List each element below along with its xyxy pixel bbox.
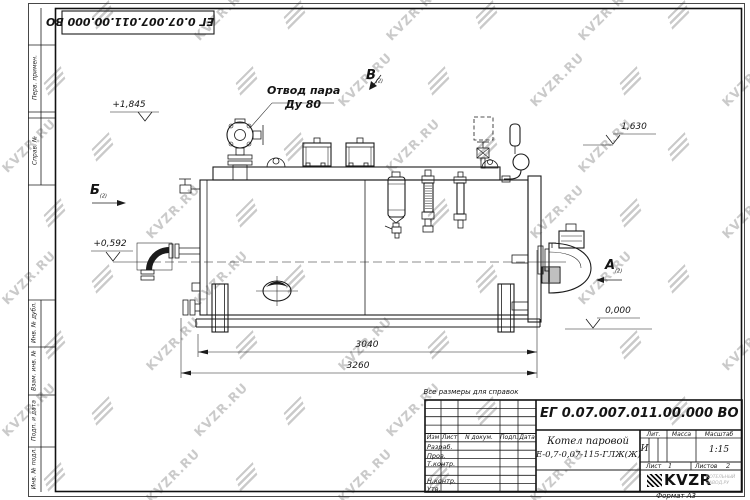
bottom-left-flange	[183, 283, 200, 315]
safety-valve-2	[346, 138, 374, 167]
dim-3260: 3260	[338, 361, 378, 371]
left-top-valve	[179, 179, 200, 193]
sheet-label: Лист	[646, 463, 661, 470]
elevation-1845: +1,845	[105, 100, 153, 110]
water-gauge-1	[422, 170, 434, 232]
margin-label-sprav-no: Справ. №	[32, 118, 39, 184]
steam-outlet-valve	[227, 119, 263, 180]
steam-outlet-label-line2: Ду 80	[267, 98, 339, 111]
scale-header: Масштаб	[696, 431, 742, 438]
margin-label-vzam-inv: Взам. инв. №	[31, 348, 38, 394]
dim-3040: 3040	[347, 340, 387, 350]
product-name-line1: Котел паровой	[538, 436, 638, 447]
margin-label-podp-data: Подп. и дата	[31, 395, 38, 447]
drawing-sheet: KVZR.RUKVZR.RUKVZR.RUKVZR.RUKVZR.RUKVZR.…	[0, 0, 750, 500]
col-header-izm: Изм	[424, 434, 442, 441]
lit-value: И	[640, 444, 649, 454]
format-label: Формат А3	[646, 492, 706, 500]
col-header-list: Лист	[441, 434, 458, 441]
row-label-prov: Пров.	[427, 452, 446, 460]
sheet-frame	[28, 4, 745, 497]
row-label-utv: Утв.	[427, 485, 441, 493]
mass-header: Масса	[667, 431, 696, 438]
skid-frame	[196, 319, 540, 327]
phantom-valve-outline	[474, 117, 493, 140]
kvzr-logo-text: KVZR	[664, 471, 712, 489]
margin-label-inv-podl: Инв. № подл.	[31, 447, 38, 491]
elevation-0592: +0,592	[86, 239, 134, 249]
row-label-tkontr: Т.контр.	[427, 460, 455, 468]
lifting-lug-left	[267, 158, 285, 167]
kvzr-logo-subtext-2: ЗАВОД.РУ	[706, 481, 729, 486]
kvzr-logo-icon	[647, 474, 662, 487]
sheet-value: 1	[668, 462, 672, 470]
elevation-0000: 0,000	[596, 306, 640, 316]
view-label-a: А(2)	[605, 258, 622, 275]
view-arrows	[92, 75, 622, 283]
corner-stamp-doc-number: ЕГ 0.07.007.011.00.000 ВО	[62, 15, 214, 28]
view-label-b: Б(2)	[90, 183, 107, 200]
sheets-label: Листов	[695, 463, 717, 470]
scale-value: 1:15	[696, 445, 742, 455]
left-elbow	[137, 243, 200, 280]
row-label-nkontr: Н.контр.	[427, 477, 456, 485]
view-label-v: В(2)	[366, 68, 383, 85]
col-header-podp: Подп.	[500, 434, 518, 441]
row-label-razrab: Разраб.	[427, 443, 453, 451]
reference-note: Все размеры для справок	[423, 388, 519, 396]
col-header-ndokum: N докум.	[458, 434, 500, 441]
margin-label-perv-primen: Перв. примен.	[32, 45, 39, 111]
boiler-body	[152, 167, 566, 322]
dimension-lines	[181, 250, 537, 378]
pressure-gauge	[502, 124, 529, 182]
col-header-data: Дата	[518, 434, 536, 441]
safety-valve-1	[303, 138, 331, 167]
steam-outlet-label-line1: Отвод пара	[267, 84, 339, 97]
margin-label-inv-dubl: Инв. № дубл.	[31, 300, 38, 346]
product-name-line2: Е-0,7-0,07-115-ГЛЖ(Ж)	[536, 450, 640, 460]
lit-header: Лит.	[640, 431, 667, 438]
gauge-instrument-1	[385, 172, 405, 238]
manhole	[256, 276, 298, 306]
burner	[538, 224, 591, 293]
elevation-1630: 1,630	[612, 122, 656, 132]
sheets-value: 2	[726, 462, 730, 470]
kvzr-logo-subtext-1: КОТЕЛЬНЫЙ	[706, 475, 735, 480]
title-doc-number: ЕГ 0.07.007.011.00.000 ВО	[540, 406, 738, 421]
